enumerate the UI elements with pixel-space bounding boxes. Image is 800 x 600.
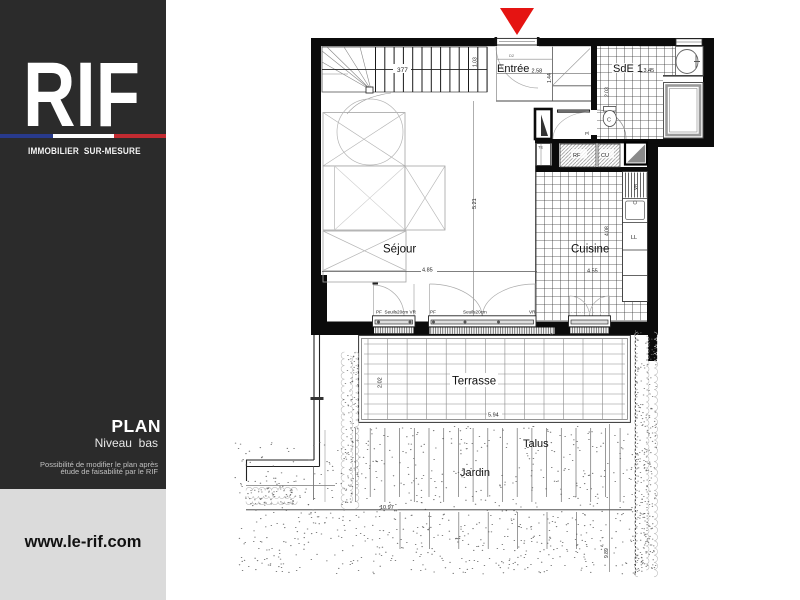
svg-text:VR: VR <box>410 310 417 315</box>
svg-text:CU: CU <box>601 153 609 159</box>
svg-text:VR: VR <box>529 310 536 315</box>
svg-text:RF: RF <box>573 153 581 159</box>
svg-text:377: 377 <box>397 67 408 74</box>
svg-text:PF: PF <box>376 310 382 315</box>
svg-text:4.85: 4.85 <box>422 268 433 274</box>
svg-text:Seuils20cm: Seuils20cm <box>463 310 487 315</box>
svg-text:5.21: 5.21 <box>472 198 478 209</box>
svg-text:2.58: 2.58 <box>532 69 543 75</box>
svg-text:1.03: 1.03 <box>473 57 479 67</box>
svg-text:D2: D2 <box>509 53 515 58</box>
svg-text:Pl: Pl <box>585 131 589 136</box>
svg-text:Cuisine: Cuisine <box>571 244 609 256</box>
svg-text:2.02: 2.02 <box>378 377 384 388</box>
svg-text:Seuils20cm: Seuils20cm <box>385 310 409 315</box>
svg-text:VR: VR <box>633 183 638 190</box>
svg-text:1.44: 1.44 <box>547 73 553 83</box>
svg-text:10.97: 10.97 <box>380 505 394 511</box>
svg-text:Entrée: Entrée <box>497 63 529 75</box>
svg-text:Talus: Talus <box>523 438 549 450</box>
svg-text:SdE 1: SdE 1 <box>613 63 643 75</box>
svg-text:4.55: 4.55 <box>587 269 598 275</box>
svg-text:PF Seuils20cm VR: PF Seuils20cm VR <box>570 311 609 316</box>
svg-text:Séjour: Séjour <box>383 244 416 256</box>
svg-text:PF: PF <box>430 310 436 315</box>
svg-text:TE: TE <box>538 145 543 150</box>
svg-text:4.08: 4.08 <box>605 226 611 236</box>
svg-text:2.03: 2.03 <box>605 87 611 97</box>
svg-text:Terrasse: Terrasse <box>452 376 496 388</box>
svg-text:C: C <box>607 118 611 124</box>
svg-text:9.89: 9.89 <box>604 548 610 558</box>
svg-text:5.94: 5.94 <box>488 413 499 419</box>
svg-text:LL: LL <box>631 235 637 241</box>
svg-text:3.45: 3.45 <box>644 68 655 74</box>
